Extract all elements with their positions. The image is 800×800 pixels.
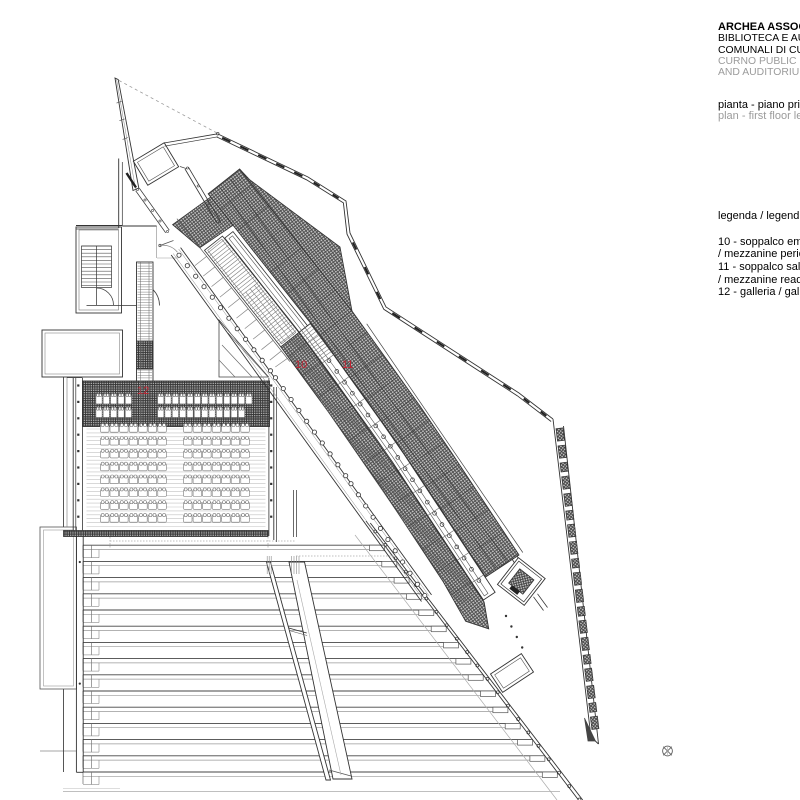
svg-text:11: 11 — [342, 359, 353, 371]
svg-text:10: 10 — [295, 359, 307, 371]
svg-text:12: 12 — [137, 385, 149, 397]
